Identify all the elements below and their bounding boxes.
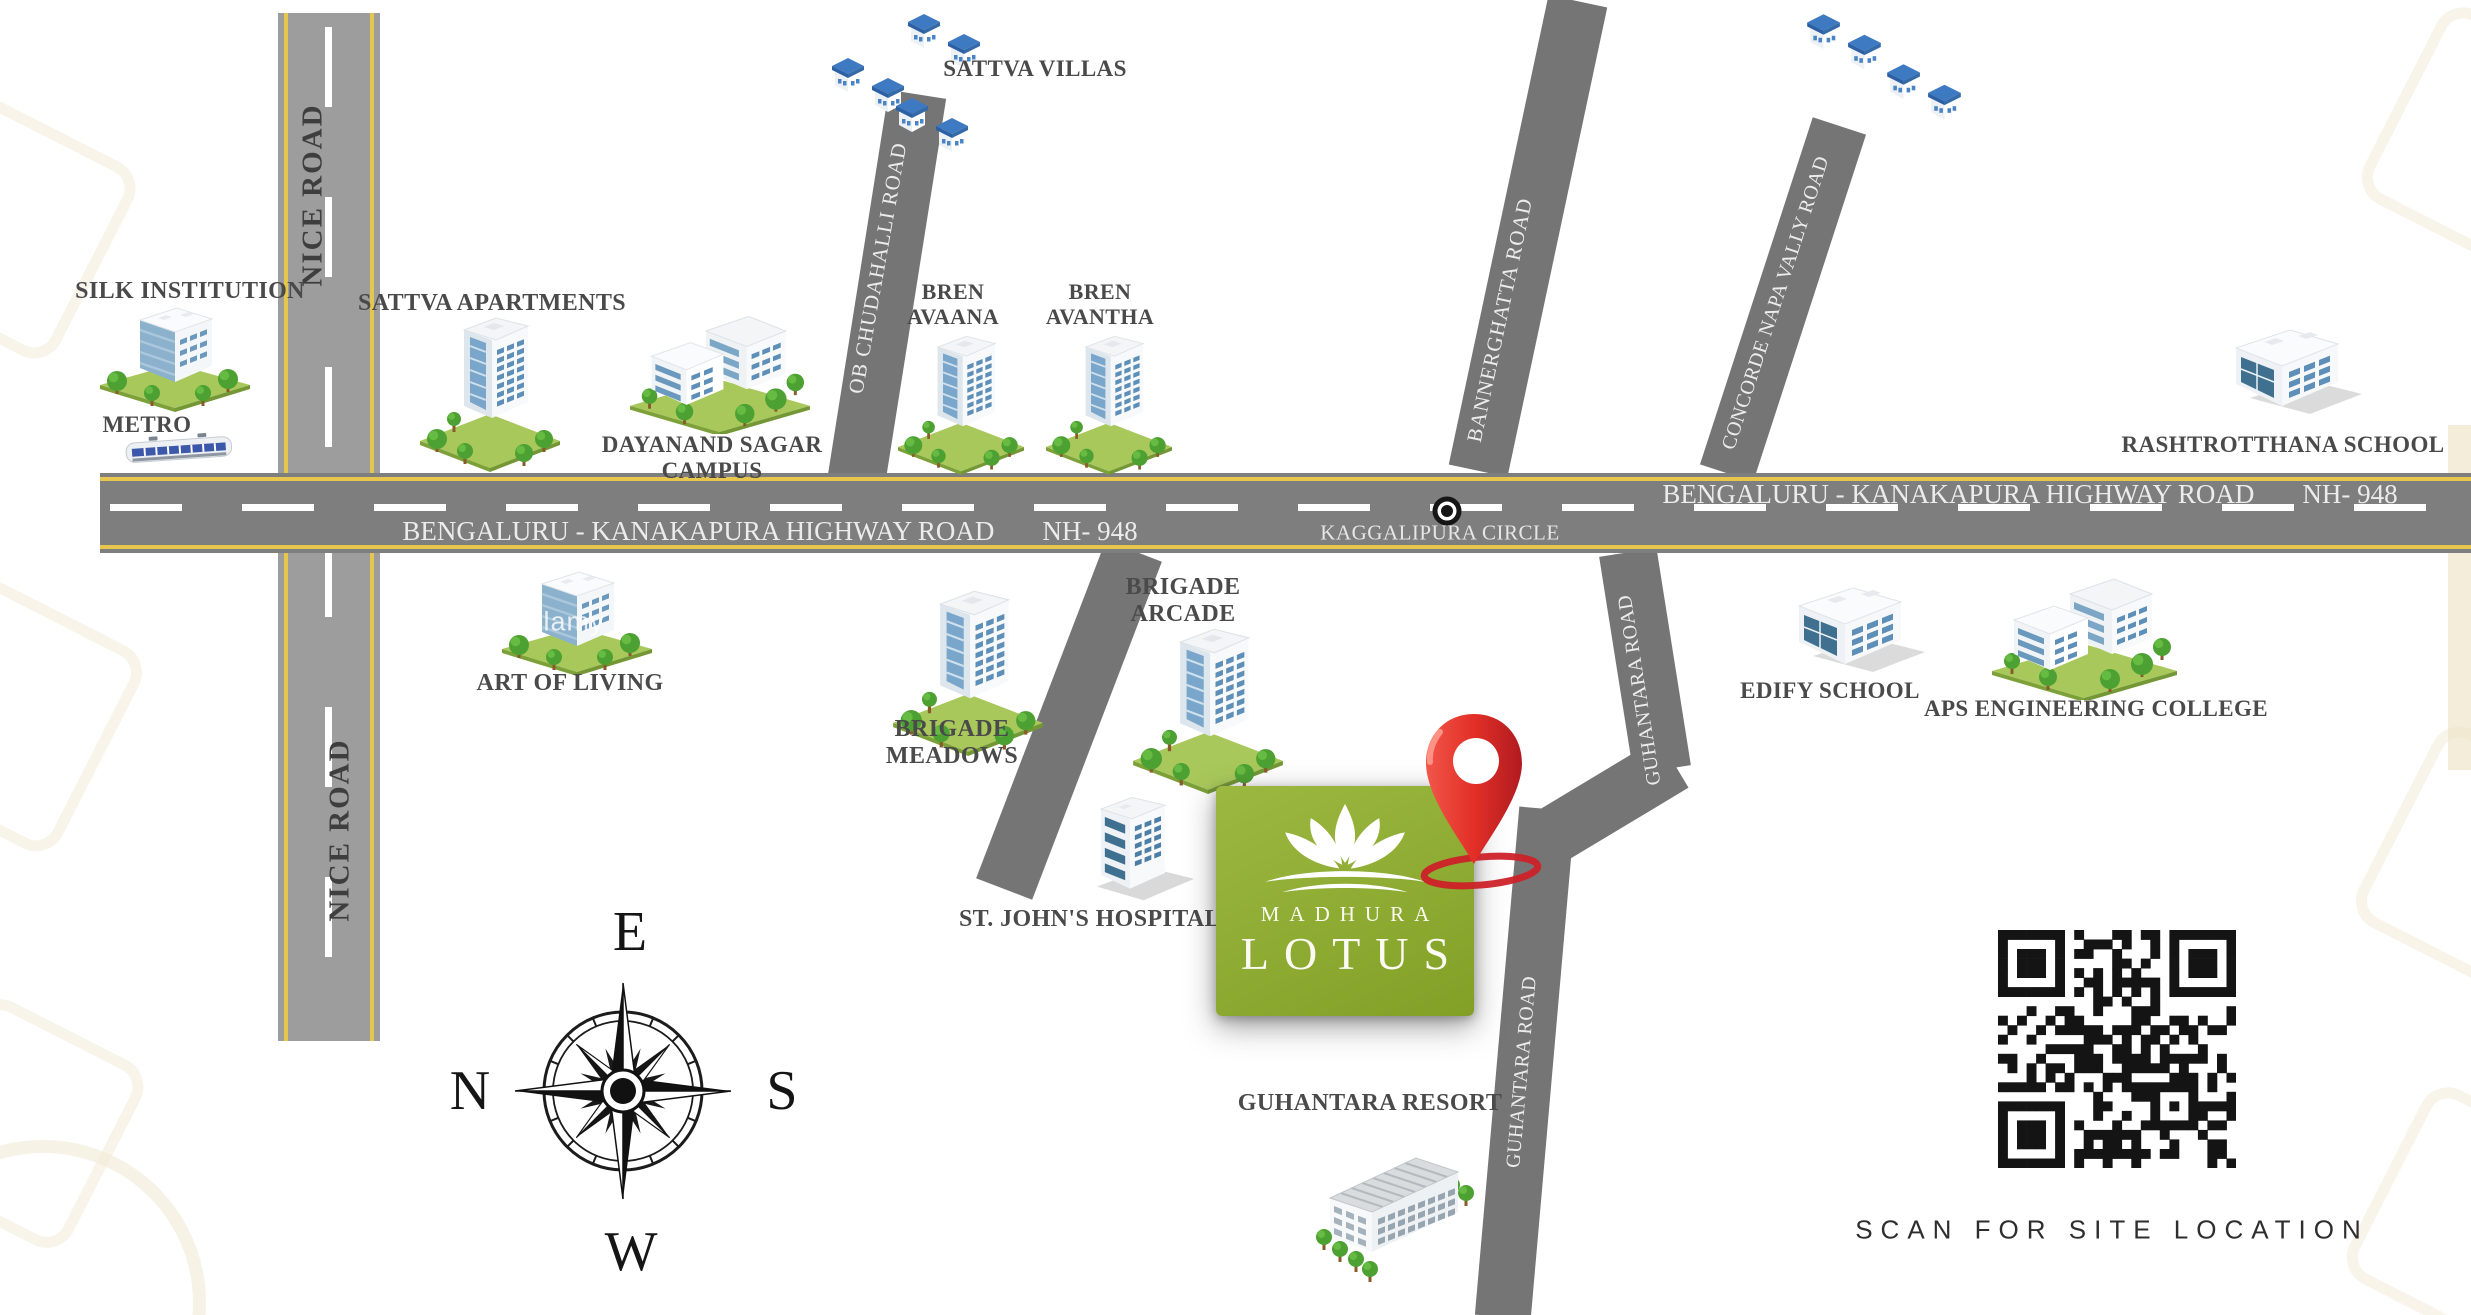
- landmark-bren-avaana: [898, 320, 1024, 475]
- stock-watermark: alamy: [527, 607, 604, 638]
- landmark-label-brigade-arcade: BRIGADEARCADE: [1073, 574, 1293, 628]
- compass-west: W: [605, 1220, 658, 1284]
- edify-school-icon: [1775, 568, 1925, 680]
- location-pin-icon: [1418, 712, 1530, 872]
- lotus-logo-icon: [1250, 800, 1440, 900]
- compass-east: E: [613, 900, 647, 964]
- brigade-arcade-icon: [1133, 610, 1283, 794]
- landmark-brigade-arcade: [1133, 610, 1283, 794]
- landmark-rashtrotthana-school: [2212, 310, 2362, 422]
- landmark-st-johns-hospital: [1068, 778, 1194, 909]
- landmark-label-brigade-meadows: BRIGADEMEADOWS: [837, 716, 1067, 770]
- landmark-label-aps-engineering-college: APS ENGINEERING COLLEGE: [1921, 696, 2271, 722]
- landmark-label-sattva-apartments: SATTVA APARTMENTS: [322, 290, 662, 317]
- landmark-label-silk-institution: SILK INSTITUTION: [40, 278, 340, 305]
- landmark-label-guhantara-resort: GUHANTARA RESORT: [1215, 1090, 1525, 1117]
- sattva-apartments-icon: [420, 300, 560, 472]
- villas-ne-2-icon: [1878, 62, 1970, 134]
- landmark-sattva-villas: [828, 8, 998, 156]
- landmark-guhantara-resort: [1300, 1120, 1480, 1288]
- bren-avaana-icon: [898, 320, 1024, 475]
- landmark-label-dayanand-sagar-campus: DAYANAND SAGARCAMPUS: [562, 432, 862, 484]
- st-johns-hospital-icon: [1068, 778, 1194, 909]
- landmark-label-art-of-living: ART OF LIVING: [440, 670, 700, 697]
- landmark-sattva-apartments: [420, 300, 560, 472]
- bren-avantha-icon: [1046, 320, 1172, 475]
- guhantara-resort-icon: [1300, 1120, 1480, 1288]
- site-name-line1: MADHURA: [1251, 902, 1440, 927]
- site-name-line2: LOTUS: [1226, 927, 1464, 980]
- sattva-villas-icon: [828, 8, 998, 156]
- landmark-villas-ne-2: [1878, 62, 1970, 134]
- compass-south: S: [766, 1059, 797, 1123]
- landmark-edify-school: [1775, 568, 1925, 680]
- compass-rose-icon: [503, 971, 743, 1211]
- rashtrotthana-school-icon: [2212, 310, 2362, 422]
- landmark-label-rashtrotthana-school: RASHTROTTHANA SCHOOL: [2113, 432, 2453, 458]
- landmark-villas-ne-1: [1798, 12, 1890, 84]
- landmark-aps-engineering-college: [1992, 558, 2177, 700]
- landmark-label-bren-avantha: BRENAVANTHA: [1010, 280, 1190, 329]
- landmark-label-metro: METRO: [72, 412, 222, 438]
- aps-engineering-college-icon: [1992, 558, 2177, 700]
- landmark-label-edify-school: EDIFY SCHOOL: [1715, 678, 1945, 704]
- landmark-label-sattva-villas: SATTVA VILLAS: [910, 56, 1160, 82]
- landmark-bren-avantha: [1046, 320, 1172, 475]
- villas-ne-1-icon: [1798, 12, 1890, 84]
- compass-north: N: [450, 1059, 490, 1123]
- qr-code: [1998, 930, 2236, 1168]
- landmark-silk-institution: [100, 292, 250, 412]
- location-map: NICE ROAD NICE ROAD OB CHUDAHALLI ROAD B…: [0, 0, 2471, 1315]
- landmark-label-st-johns-hospital: ST. JOHN'S HOSPITAL: [935, 906, 1245, 933]
- qr-caption: SCAN FOR SITE LOCATION: [1855, 1215, 2369, 1246]
- silk-institution-icon: [100, 292, 250, 412]
